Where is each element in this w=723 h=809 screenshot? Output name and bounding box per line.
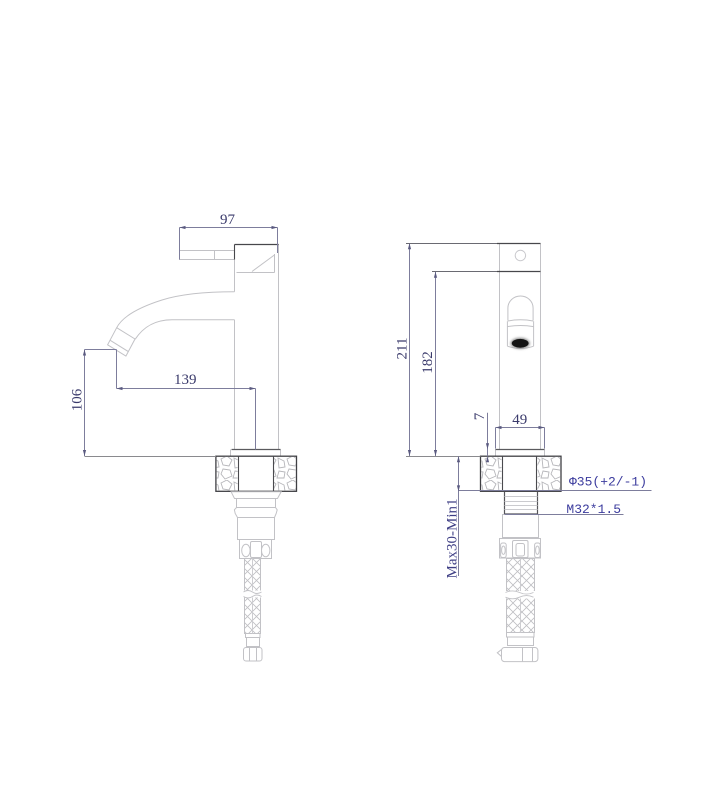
svg-text:139: 139: [174, 372, 197, 388]
svg-text:97: 97: [220, 212, 236, 228]
svg-text:7: 7: [472, 412, 488, 420]
svg-text:211: 211: [395, 338, 411, 360]
svg-text:49: 49: [512, 412, 527, 428]
svg-text:Φ35(+2/-1): Φ35(+2/-1): [569, 475, 647, 490]
svg-text:M32*1.5: M32*1.5: [566, 502, 621, 517]
svg-text:182: 182: [420, 351, 436, 374]
svg-text:106: 106: [70, 388, 86, 411]
svg-text:Max30-Min1: Max30-Min1: [445, 499, 461, 579]
